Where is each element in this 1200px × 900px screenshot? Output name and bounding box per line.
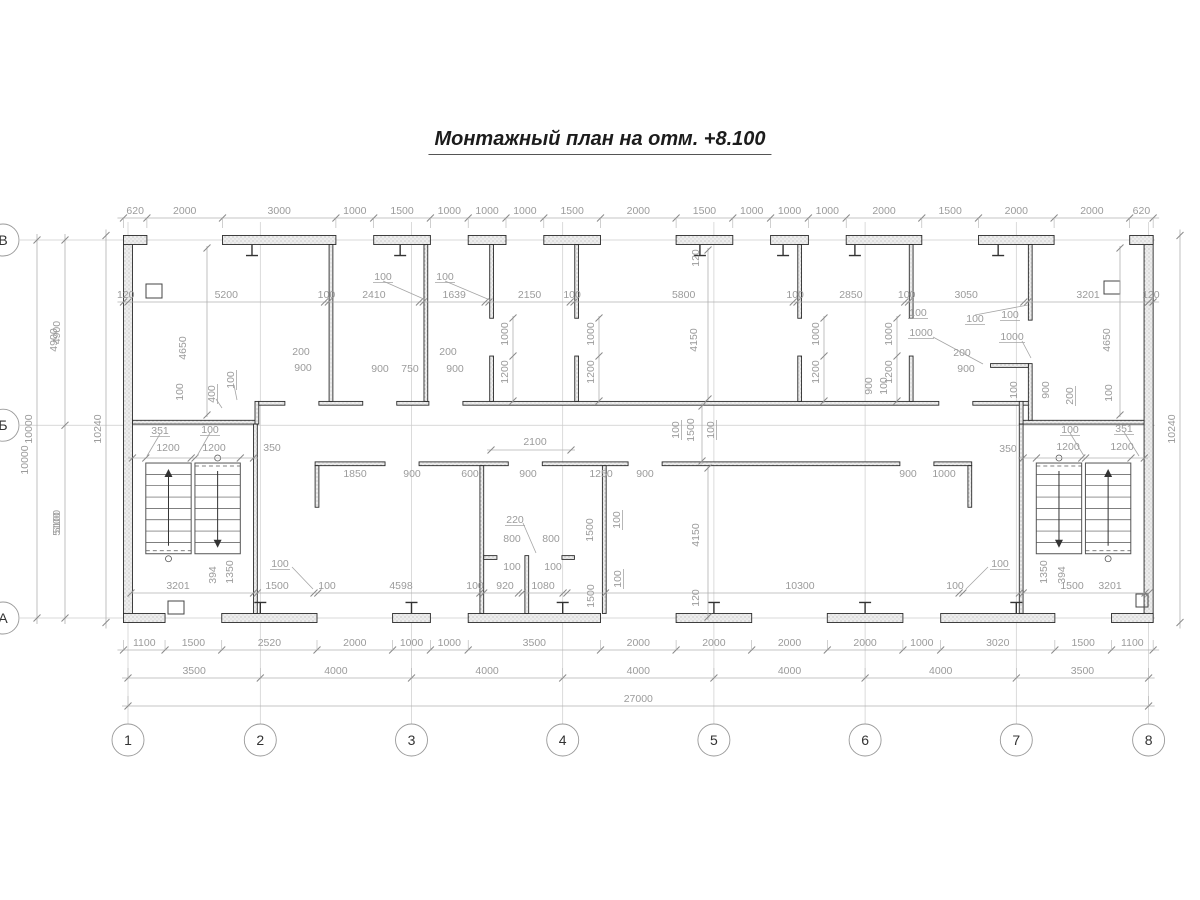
dim-label-group: 5100 bbox=[51, 512, 63, 536]
dim-label: 350 bbox=[999, 443, 1017, 455]
dim-label-group: 1200 bbox=[1056, 441, 1080, 453]
dim-label-group: 10300 bbox=[785, 580, 814, 592]
dim-label-group: 100 bbox=[225, 370, 237, 390]
dim-label-group: 900 bbox=[899, 468, 917, 480]
leader-line bbox=[292, 567, 313, 589]
dim-label: 1000 bbox=[499, 322, 511, 346]
dim-label: 1200 bbox=[585, 360, 597, 384]
wall-panel bbox=[254, 424, 258, 613]
dim-label-group: 394 bbox=[1056, 566, 1068, 584]
wall-panel bbox=[525, 556, 529, 614]
dim-label: 100 bbox=[898, 289, 916, 301]
dim-label-group: 920 bbox=[496, 580, 514, 592]
dim-label-group: 100 bbox=[174, 383, 186, 401]
dim-label: 1500 bbox=[182, 637, 206, 649]
dim-label: 800 bbox=[503, 533, 521, 545]
dim-label-group: 100 bbox=[1008, 381, 1020, 399]
floor-plan: 6202000300010001500100010001000150020001… bbox=[0, 0, 1200, 900]
axis-circle-label: 2 bbox=[256, 732, 264, 748]
dim-label: 2000 bbox=[1080, 205, 1104, 217]
dim-label-group: 1200 bbox=[1110, 441, 1134, 453]
dim-label-group: 1500 bbox=[685, 418, 697, 442]
dim-label-group: 900 bbox=[863, 377, 875, 395]
dim-label: 2000 bbox=[173, 205, 197, 217]
dim-label: 4000 bbox=[627, 665, 651, 677]
dim-label-group: 100 bbox=[878, 377, 890, 395]
dim-label: 900 bbox=[636, 468, 654, 480]
dim-label: 350 bbox=[263, 442, 281, 454]
dim-label-group: 394 bbox=[207, 566, 219, 584]
dim-label: 620 bbox=[1133, 205, 1151, 217]
wall-panel bbox=[1028, 364, 1032, 421]
dim-label: 1000 bbox=[1000, 331, 1024, 343]
dim-label-group: 100 bbox=[270, 558, 290, 570]
dim-label-group: 4900 bbox=[48, 328, 60, 352]
dimensions: 6202000300010001500100010001000150020001… bbox=[23, 205, 1184, 710]
dim-label: 1100 bbox=[1121, 637, 1144, 649]
dim-label: 1000 bbox=[778, 205, 802, 217]
dim-label: 620 bbox=[126, 205, 144, 217]
dim-label: 27000 bbox=[624, 693, 653, 705]
dim-label: 10000 bbox=[19, 445, 31, 474]
dim-label: 1500 bbox=[938, 205, 962, 217]
dim-label: 2000 bbox=[853, 637, 877, 649]
dim-label: 100 bbox=[611, 511, 623, 529]
dim-label: 220 bbox=[506, 514, 524, 526]
dim-label: 100 bbox=[374, 271, 392, 283]
corner-column bbox=[1104, 281, 1120, 294]
dim-label: 100 bbox=[878, 377, 890, 395]
wall-panel bbox=[468, 613, 600, 622]
dim-label: 2000 bbox=[872, 205, 896, 217]
dim-label: 100 bbox=[225, 371, 237, 389]
dim-label: 100 bbox=[946, 580, 964, 592]
wall-panel bbox=[393, 613, 431, 622]
dim-label-group: 1000 bbox=[585, 322, 597, 346]
dim-label-group: 351 bbox=[1114, 423, 1134, 435]
drawing-canvas: Монтажный план на отм. +8.100 6202000300… bbox=[0, 0, 1200, 900]
dim-label: 1200 bbox=[202, 442, 226, 454]
wall-panel bbox=[1019, 424, 1023, 613]
wall-panel bbox=[123, 613, 165, 622]
dim-label-group: 1500 bbox=[584, 518, 596, 542]
wall-panel bbox=[771, 235, 809, 244]
dim-label: 3050 bbox=[954, 289, 978, 301]
dim-label: 1000 bbox=[438, 637, 462, 649]
axis-circle-label: 4 bbox=[559, 732, 567, 748]
dim-label-group: 1350 bbox=[1038, 560, 1050, 584]
dim-label: 4000 bbox=[929, 665, 953, 677]
dim-label: 100 bbox=[318, 580, 336, 592]
dim-label-group: 4650 bbox=[1101, 328, 1113, 352]
dim-label-group: 100 bbox=[612, 569, 624, 589]
wall-panel bbox=[542, 462, 628, 466]
dim-label: 100 bbox=[174, 383, 186, 401]
dim-label-group: 100 bbox=[1103, 384, 1115, 402]
dim-label-group: 100 bbox=[670, 420, 682, 440]
wall-panel bbox=[468, 235, 506, 244]
dim-label-group: 120 bbox=[690, 589, 702, 607]
dim-label-group: 10000 bbox=[19, 445, 31, 474]
dim-label: 4000 bbox=[324, 665, 348, 677]
dim-label: 394 bbox=[1056, 566, 1068, 584]
dim-label: 2000 bbox=[778, 637, 802, 649]
dim-label-group: 100 bbox=[611, 510, 623, 530]
dim-label-group: 1000 bbox=[999, 331, 1025, 343]
corner-column bbox=[146, 284, 162, 298]
wall-panel bbox=[397, 401, 429, 405]
dim-label-group: 750 bbox=[401, 363, 419, 375]
dim-label: 3500 bbox=[523, 637, 547, 649]
dim-label: 1500 bbox=[560, 205, 584, 217]
dim-label: 900 bbox=[371, 363, 389, 375]
dim-label-group: 1200 bbox=[585, 360, 597, 384]
dim-label-group: 3201 bbox=[1098, 580, 1122, 592]
dim-label-group: 4150 bbox=[688, 328, 700, 352]
dim-label: 4000 bbox=[778, 665, 802, 677]
corner-column bbox=[168, 601, 184, 614]
dim-label-group: 1080 bbox=[531, 580, 555, 592]
axis-circle-label: 8 bbox=[1145, 732, 1153, 748]
stair-arrow-head-icon bbox=[1055, 540, 1063, 548]
dim-label: 120 bbox=[690, 249, 702, 267]
dim-label-group: 100 bbox=[466, 580, 484, 592]
dim-label: 1350 bbox=[224, 560, 236, 584]
wall-panel bbox=[798, 356, 802, 401]
dim-label: 1500 bbox=[693, 205, 717, 217]
dim-label: 200 bbox=[292, 346, 310, 358]
dim-label: 1200 bbox=[156, 442, 180, 454]
dim-label-group: 900 bbox=[636, 468, 654, 480]
dim-label: 100 bbox=[544, 561, 562, 573]
axis-circle-label: 5 bbox=[710, 732, 718, 748]
wall-panel bbox=[602, 466, 606, 614]
dim-label-group: 350 bbox=[263, 442, 281, 454]
wall-panel bbox=[676, 613, 752, 622]
dim-label: 351 bbox=[151, 425, 169, 437]
dim-label: 920 bbox=[496, 580, 514, 592]
axis-markers: 12345678ВБА bbox=[0, 224, 1165, 756]
wall-panel bbox=[463, 401, 939, 405]
dim-label: 100 bbox=[991, 558, 1009, 570]
dim-label-group: 1500 bbox=[265, 580, 289, 592]
dim-label: 100 bbox=[966, 313, 984, 325]
dim-label: 2410 bbox=[362, 289, 386, 301]
dim-label: 1500 bbox=[584, 518, 596, 542]
wall-panel bbox=[1019, 401, 1023, 424]
dim-label: 900 bbox=[294, 362, 312, 374]
dim-label: 2000 bbox=[1005, 205, 1029, 217]
wall-panel bbox=[575, 245, 579, 319]
leader-line bbox=[966, 567, 988, 589]
dim-label: 100 bbox=[670, 421, 682, 439]
dim-label: 900 bbox=[957, 363, 975, 375]
dim-label: 2000 bbox=[627, 205, 651, 217]
dim-label: 200 bbox=[953, 347, 971, 359]
dim-label: 3000 bbox=[268, 205, 292, 217]
dim-label-group: 800 bbox=[503, 533, 521, 545]
dim-label-group: 1000 bbox=[499, 322, 511, 346]
dim-label-group: 3201 bbox=[166, 580, 190, 592]
axis-circle-label: 7 bbox=[1012, 732, 1020, 748]
dim-label: 1000 bbox=[343, 205, 367, 217]
dim-label: 10240 bbox=[92, 414, 104, 443]
dim-label: 2000 bbox=[627, 637, 651, 649]
leader-line bbox=[1022, 341, 1031, 358]
dim-label-group: 1000 bbox=[908, 327, 934, 339]
dim-label-group: 800 bbox=[542, 533, 560, 545]
dim-label: 1000 bbox=[932, 468, 956, 480]
wall-panel bbox=[934, 462, 972, 466]
dim-label: 1000 bbox=[810, 322, 822, 346]
dim-label-group: 100 bbox=[1060, 424, 1080, 436]
dim-label: 100 bbox=[786, 289, 804, 301]
dim-label: 100 bbox=[563, 289, 581, 301]
axis-circle-label: В bbox=[0, 232, 8, 248]
dim-label: 1000 bbox=[513, 205, 537, 217]
dim-label: 1500 bbox=[585, 584, 597, 608]
wall-panel bbox=[329, 245, 333, 402]
dim-label: 2000 bbox=[343, 637, 367, 649]
dim-label-group: 1200 bbox=[202, 442, 226, 454]
dim-label-group: 1000 bbox=[810, 322, 822, 346]
dim-label: 1000 bbox=[883, 322, 895, 346]
axis-circle-label: 3 bbox=[408, 732, 416, 748]
wall-panel bbox=[222, 613, 317, 622]
dim-label: 100 bbox=[909, 307, 927, 319]
dim-label: 1100 bbox=[133, 637, 156, 649]
wall-panel bbox=[544, 235, 601, 244]
dim-label: 1000 bbox=[438, 205, 462, 217]
dim-label-group: 100 bbox=[544, 561, 562, 573]
dim-label-group: 900 bbox=[446, 363, 464, 375]
dim-label: 5200 bbox=[215, 289, 239, 301]
dim-label-group: 900 bbox=[1040, 381, 1052, 399]
dim-label: 100 bbox=[705, 421, 717, 439]
dim-label: 100 bbox=[201, 424, 219, 436]
dim-label-group: 200 bbox=[953, 347, 971, 359]
dim-label-group: 1200 bbox=[810, 360, 822, 384]
dim-label: 3020 bbox=[986, 637, 1010, 649]
axis-circle-label: 1 bbox=[124, 732, 132, 748]
axis-circle-label: 6 bbox=[861, 732, 869, 748]
dim-label: 1500 bbox=[390, 205, 414, 217]
wall-panel bbox=[798, 245, 802, 319]
dim-label-group: 120 bbox=[690, 249, 702, 267]
wall-panel bbox=[562, 556, 574, 560]
dim-label: 100 bbox=[318, 289, 336, 301]
dim-label: 900 bbox=[403, 468, 421, 480]
dim-label: 4650 bbox=[1101, 328, 1113, 352]
dim-label: 1500 bbox=[265, 580, 289, 592]
dim-label: 100 bbox=[1001, 309, 1019, 321]
dim-label: 600 bbox=[461, 468, 479, 480]
dim-label-group: 100 bbox=[318, 580, 336, 592]
stair-arrow-head-icon bbox=[164, 469, 172, 477]
dim-label: 3201 bbox=[1098, 580, 1122, 592]
dim-label-group: 900 bbox=[371, 363, 389, 375]
dim-label: 1850 bbox=[343, 468, 367, 480]
dim-label-group: 900 bbox=[519, 468, 537, 480]
leader-line bbox=[383, 281, 426, 300]
wall-panel bbox=[1028, 245, 1032, 321]
dim-label: 2150 bbox=[518, 289, 542, 301]
dim-label-group: 900 bbox=[294, 362, 312, 374]
dim-label: 3500 bbox=[1071, 665, 1095, 677]
dim-label: 200 bbox=[1064, 387, 1076, 405]
dim-label: 1350 bbox=[1038, 560, 1050, 584]
wall-panel bbox=[315, 462, 385, 466]
dim-label: 10240 bbox=[1166, 414, 1178, 443]
dim-label: 900 bbox=[863, 377, 875, 395]
wall-panel bbox=[662, 462, 900, 466]
dim-label: 100 bbox=[503, 561, 521, 573]
dim-label: 4150 bbox=[688, 328, 700, 352]
dim-label-group: 1000 bbox=[883, 322, 895, 346]
wall-panel bbox=[419, 462, 508, 466]
stair-break-circle bbox=[1105, 556, 1111, 562]
dim-label: 5800 bbox=[672, 289, 696, 301]
dim-label-group: 100 bbox=[705, 420, 717, 440]
dim-label: 2520 bbox=[258, 637, 282, 649]
wall-panel bbox=[968, 466, 972, 508]
dim-label: 200 bbox=[439, 346, 457, 358]
dim-label-group: 900 bbox=[957, 363, 975, 375]
dim-label-group: 4650 bbox=[177, 336, 189, 360]
dim-label-group: 351 bbox=[150, 425, 170, 437]
dim-label: 900 bbox=[1040, 381, 1052, 399]
dim-label: 1200 bbox=[1056, 441, 1080, 453]
wall-panel bbox=[255, 401, 259, 424]
dim-label-group: 4150 bbox=[690, 523, 702, 547]
dim-label: 1000 bbox=[475, 205, 499, 217]
dim-label: 900 bbox=[899, 468, 917, 480]
dim-label: 1080 bbox=[531, 580, 555, 592]
wall-panel bbox=[490, 245, 494, 319]
dim-label: 3500 bbox=[182, 665, 206, 677]
dim-label: 2100 bbox=[523, 436, 547, 448]
dim-label-group: 100 bbox=[965, 313, 985, 325]
dim-label: 3201 bbox=[166, 580, 190, 592]
dim-label-group: 220 bbox=[505, 514, 525, 526]
wall-panel bbox=[979, 235, 1055, 244]
dim-label: 1500 bbox=[685, 418, 697, 442]
dim-label: 900 bbox=[446, 363, 464, 375]
wall-panel bbox=[909, 356, 913, 401]
dim-label: 400 bbox=[206, 385, 218, 403]
dim-label: 100 bbox=[436, 271, 454, 283]
dim-label: 1000 bbox=[909, 327, 933, 339]
dim-label: 1200 bbox=[499, 360, 511, 384]
dim-label-group: 100 bbox=[435, 271, 455, 283]
dim-label: 100 bbox=[1008, 381, 1020, 399]
dim-label: 4900 bbox=[48, 328, 60, 352]
dim-label-group: 400 bbox=[206, 384, 218, 404]
dim-label: 10300 bbox=[785, 580, 814, 592]
wall-panel bbox=[484, 556, 497, 560]
dim-label: 1500 bbox=[1072, 637, 1096, 649]
dim-label-group: 1350 bbox=[224, 560, 236, 584]
wall-panel bbox=[575, 356, 579, 401]
dim-label: 5100 bbox=[51, 512, 63, 536]
leader-line bbox=[523, 523, 536, 553]
stair-arrow-head-icon bbox=[1104, 469, 1112, 477]
wall-panel bbox=[123, 235, 146, 244]
dim-label: 900 bbox=[519, 468, 537, 480]
dim-label: 100 bbox=[612, 570, 624, 588]
dim-label-group: 900 bbox=[403, 468, 421, 480]
dim-label-group: 1500 bbox=[585, 584, 597, 608]
wall-panel bbox=[424, 245, 428, 402]
dim-label: 1200 bbox=[810, 360, 822, 384]
axis-circle-label: А bbox=[0, 610, 8, 626]
wall-panel bbox=[223, 235, 336, 244]
dim-label: 394 bbox=[207, 566, 219, 584]
dim-label: 1639 bbox=[443, 289, 467, 301]
axis-circle-label: Б bbox=[0, 417, 8, 433]
dim-label: 800 bbox=[542, 533, 560, 545]
dim-label: 4150 bbox=[690, 523, 702, 547]
wall-panel bbox=[315, 466, 319, 508]
dim-label-group: 1250 bbox=[589, 468, 613, 480]
wall-panel bbox=[676, 235, 733, 244]
dim-label-group: 100 bbox=[1000, 309, 1020, 321]
dim-label-group: 1200 bbox=[499, 360, 511, 384]
dim-label-group: 100 bbox=[373, 271, 393, 283]
dim-label: 2000 bbox=[702, 637, 726, 649]
wall-panel bbox=[319, 401, 363, 405]
wall-panel bbox=[941, 613, 1055, 622]
wall-panel bbox=[1130, 235, 1153, 244]
wall-panel bbox=[259, 401, 285, 405]
dim-label: 351 bbox=[1115, 423, 1133, 435]
dim-label-group: 100 bbox=[503, 561, 521, 573]
wall-panel bbox=[846, 235, 922, 244]
dim-label-group: 1000 bbox=[932, 468, 956, 480]
dim-label-group: 350 bbox=[999, 443, 1017, 455]
dim-label: 120 bbox=[690, 589, 702, 607]
dim-label: 750 bbox=[401, 363, 419, 375]
dim-label: 120 bbox=[117, 289, 135, 301]
stair-break-circle bbox=[165, 556, 171, 562]
wall-panel bbox=[133, 420, 255, 424]
dim-label: 1000 bbox=[400, 637, 424, 649]
dim-label: 4000 bbox=[475, 665, 499, 677]
dim-label-group: 200 bbox=[292, 346, 310, 358]
dim-label-group: 600 bbox=[461, 468, 479, 480]
wall-panel bbox=[991, 364, 1029, 368]
dim-label: 1000 bbox=[740, 205, 764, 217]
dim-label-group: 100 bbox=[200, 424, 220, 436]
dim-label-group: 1850 bbox=[343, 468, 367, 480]
dim-label: 100 bbox=[271, 558, 289, 570]
dim-label: 3201 bbox=[1076, 289, 1100, 301]
dim-label: 100 bbox=[1103, 384, 1115, 402]
dim-label: 120 bbox=[1142, 289, 1160, 301]
dim-label: 1000 bbox=[585, 322, 597, 346]
dim-label-group: 200 bbox=[1064, 386, 1076, 406]
wall-panel bbox=[1112, 613, 1154, 622]
dim-label: 1000 bbox=[816, 205, 840, 217]
dim-label: 100 bbox=[1061, 424, 1079, 436]
dim-label: 4650 bbox=[177, 336, 189, 360]
dim-label: 1250 bbox=[589, 468, 613, 480]
wall-panel bbox=[490, 356, 494, 401]
dim-label-group: 2100 bbox=[523, 436, 547, 448]
wall-panel bbox=[827, 613, 903, 622]
dim-label-group: 200 bbox=[439, 346, 457, 358]
wall-panel bbox=[374, 235, 431, 244]
